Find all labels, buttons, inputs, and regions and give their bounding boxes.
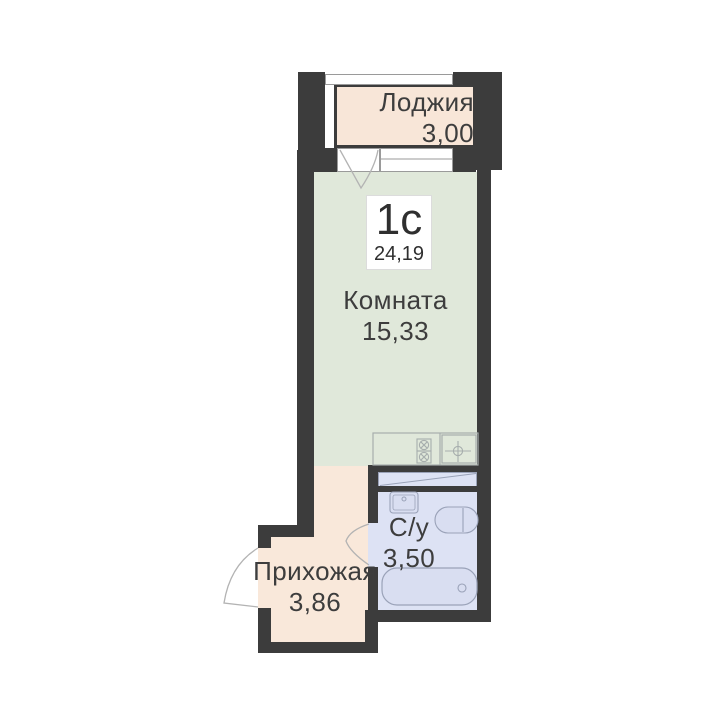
wall-segment (314, 148, 337, 172)
room-label-block: Комната 15,33 (314, 285, 477, 346)
bathroom-label: С/у (366, 512, 452, 543)
loggia-area-value: 3,00 (330, 118, 474, 148)
room-area-value: 15,33 (314, 316, 477, 346)
wall-segment (258, 642, 378, 653)
wall-segment (453, 148, 476, 172)
wall-segment (297, 150, 314, 533)
loggia-label-block: Лоджия 3,00 (330, 87, 474, 148)
wall-segment (258, 525, 271, 548)
bathroom-label-block: С/у 3,50 (366, 512, 452, 573)
wall-segment (477, 170, 491, 622)
floor-plan-canvas: Лоджия 3,00 1с 24,19 Комната 15,33 Прихо… (0, 0, 726, 726)
hallway-area-value: 3,86 (240, 587, 390, 617)
wall-segment (298, 72, 325, 150)
wall-segment (378, 486, 477, 492)
bathroom-duct-strip (378, 472, 477, 487)
loggia-label: Лоджия (330, 87, 474, 118)
loggia-glazing-top (325, 74, 453, 85)
balcony-door (337, 148, 380, 172)
room-window (380, 148, 453, 172)
apartment-badge: 1с 24,19 (366, 195, 432, 270)
wall-segment (368, 465, 491, 472)
hallway-area-upper (314, 466, 368, 533)
bathroom-area-value: 3,50 (366, 543, 452, 573)
badge-type: 1с (367, 196, 431, 243)
wall-segment (476, 72, 502, 170)
badge-total-area: 24,19 (367, 243, 431, 265)
room-label: Комната (314, 285, 477, 316)
